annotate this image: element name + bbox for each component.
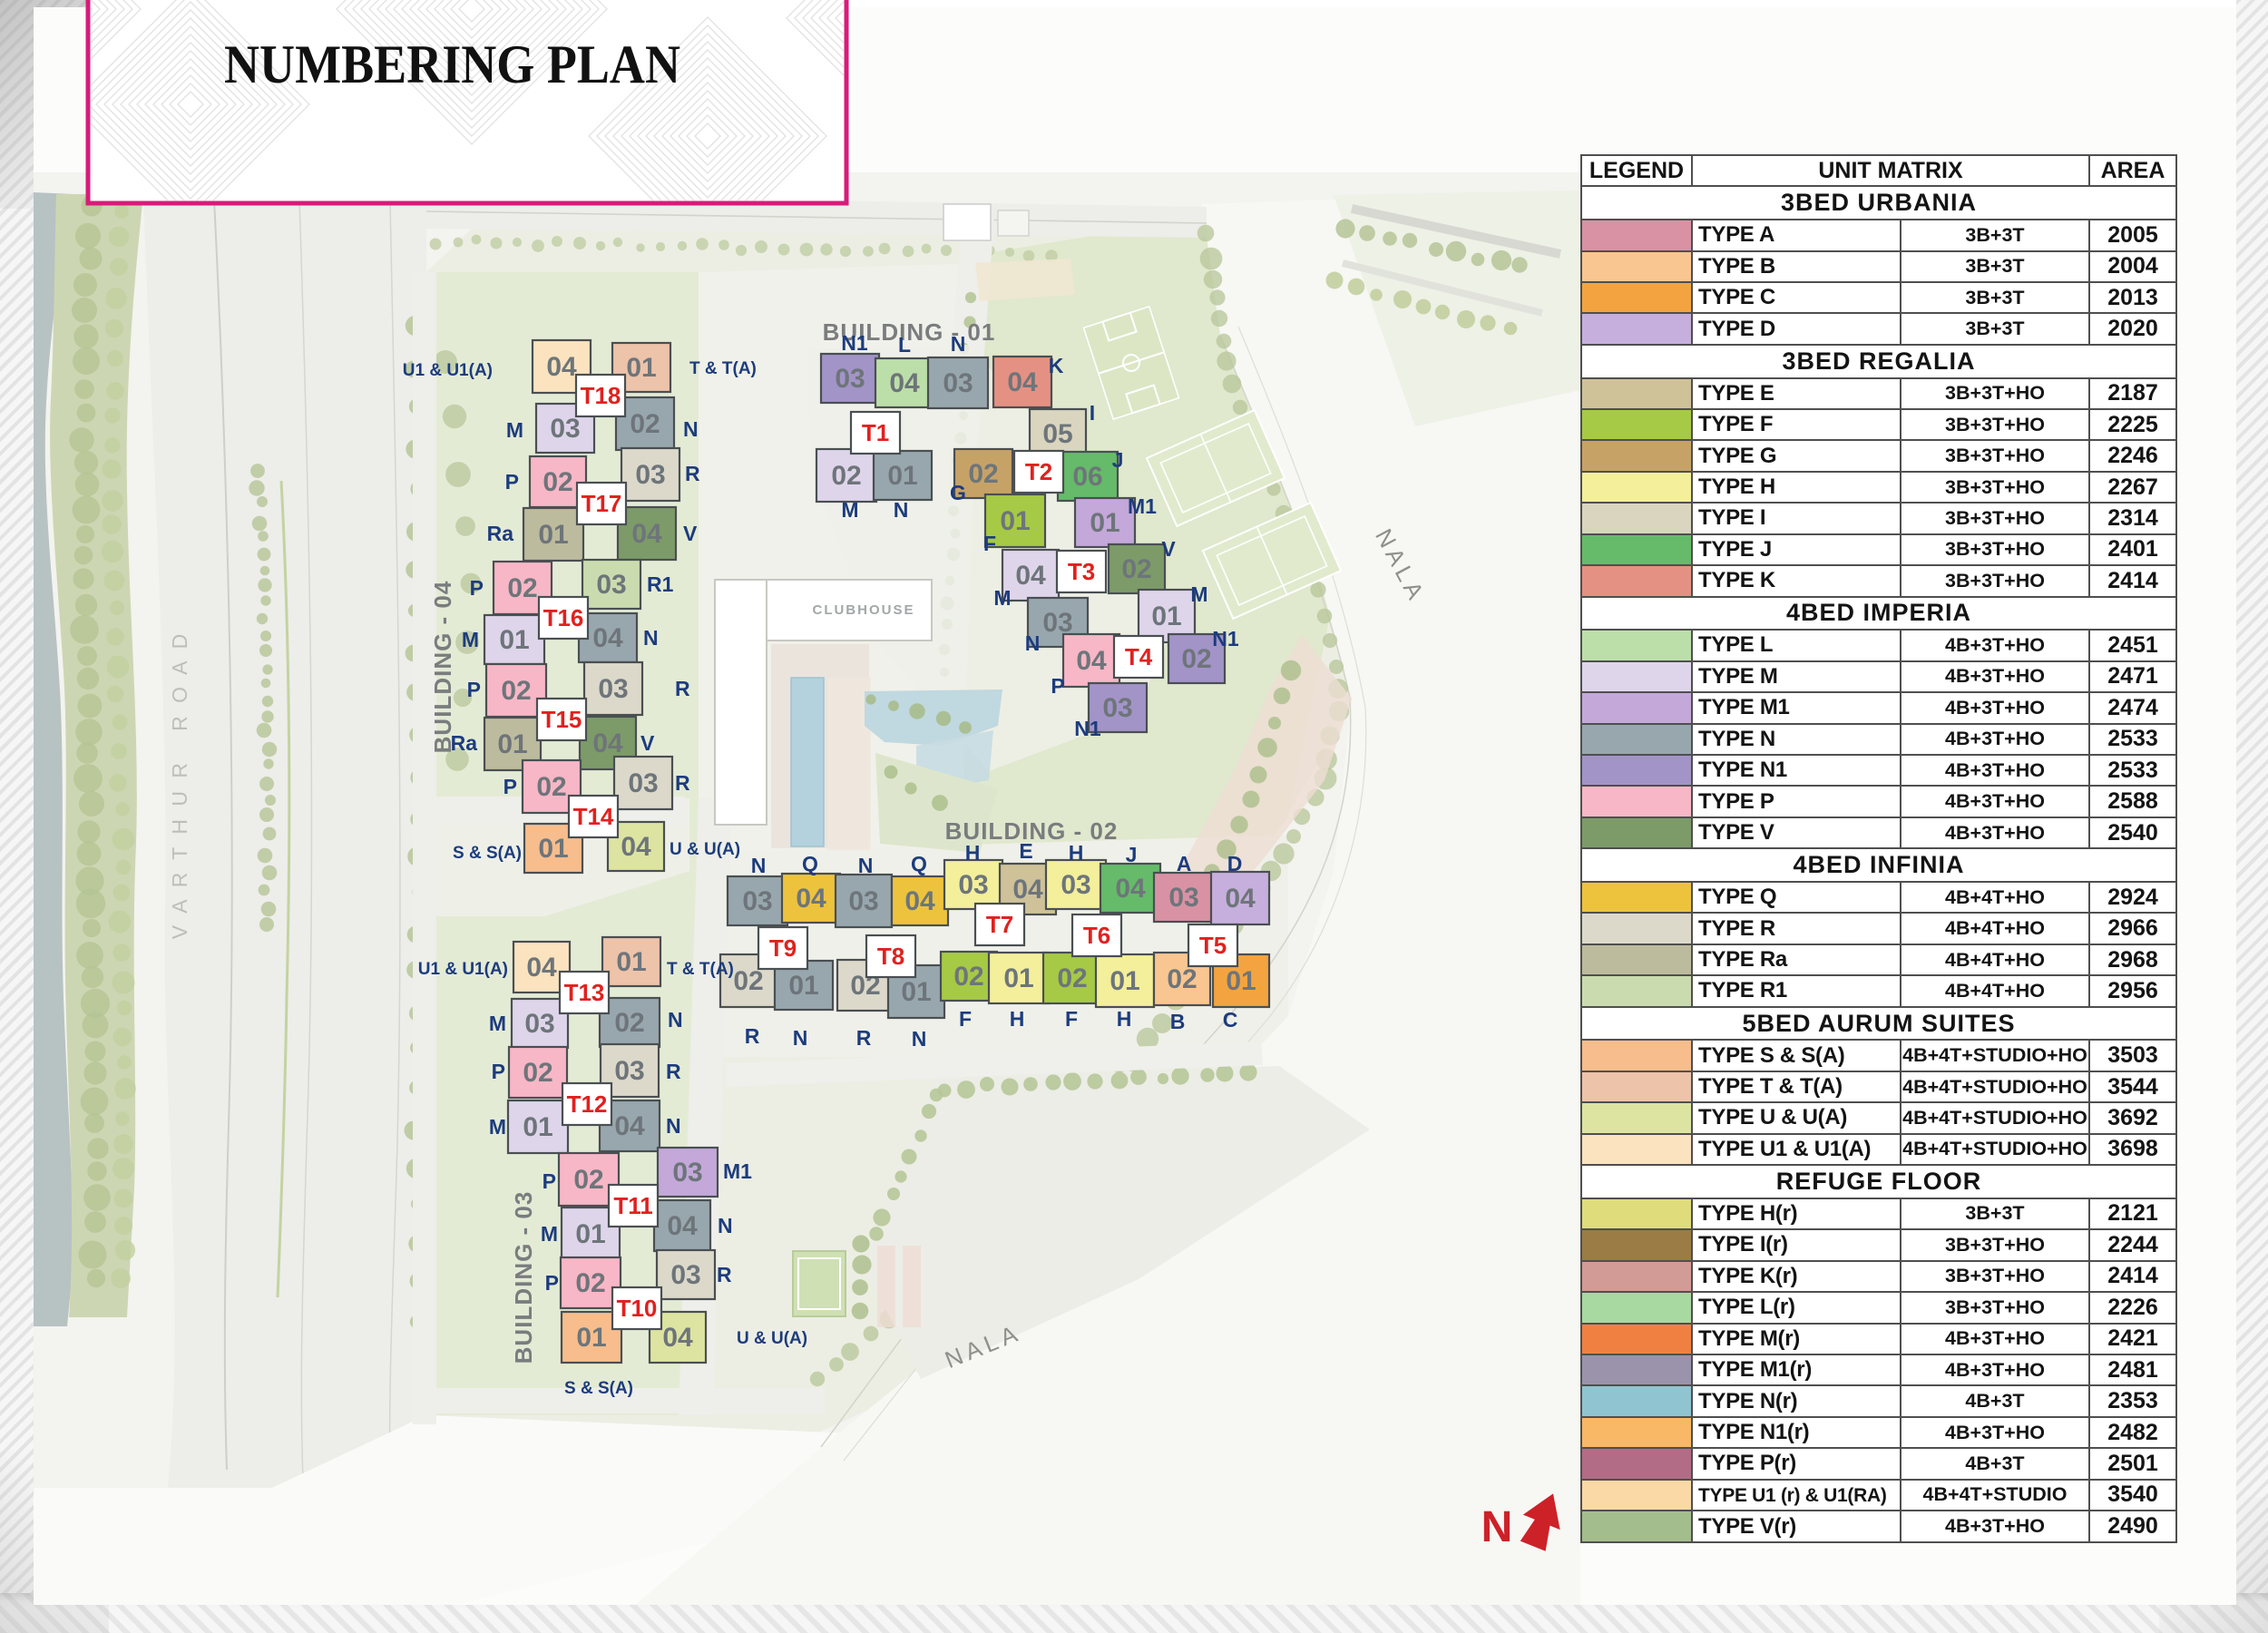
svg-text:02: 02 bbox=[614, 1008, 644, 1038]
svg-text:01: 01 bbox=[788, 971, 818, 1001]
svg-text:04: 04 bbox=[1076, 646, 1107, 676]
svg-text:03: 03 bbox=[635, 460, 665, 490]
svg-text:V: V bbox=[1161, 537, 1176, 561]
svg-text:N: N bbox=[751, 854, 767, 877]
svg-text:G: G bbox=[950, 481, 966, 504]
svg-text:04: 04 bbox=[621, 832, 651, 862]
svg-text:Ra: Ra bbox=[487, 522, 514, 545]
svg-text:04: 04 bbox=[526, 953, 557, 983]
svg-text:U & U(A): U & U(A) bbox=[737, 1329, 807, 1348]
svg-text:R: R bbox=[675, 677, 690, 700]
svg-text:04: 04 bbox=[1015, 561, 1046, 591]
svg-text:P: P bbox=[470, 576, 484, 600]
svg-text:T2: T2 bbox=[1025, 458, 1052, 485]
svg-text:N1: N1 bbox=[1212, 627, 1239, 650]
svg-text:Ra: Ra bbox=[451, 731, 478, 755]
svg-text:L: L bbox=[898, 333, 911, 357]
svg-text:03: 03 bbox=[742, 886, 772, 916]
svg-text:T3: T3 bbox=[1068, 558, 1095, 585]
svg-text:01: 01 bbox=[1110, 966, 1139, 996]
svg-text:R: R bbox=[675, 771, 690, 795]
svg-text:V: V bbox=[640, 731, 655, 755]
svg-text:03: 03 bbox=[596, 570, 626, 600]
svg-text:01: 01 bbox=[1151, 601, 1181, 631]
svg-text:02: 02 bbox=[1121, 554, 1151, 584]
svg-text:N: N bbox=[1025, 631, 1041, 655]
svg-text:04: 04 bbox=[592, 728, 623, 758]
svg-text:02: 02 bbox=[968, 459, 998, 489]
svg-text:N: N bbox=[666, 1114, 681, 1138]
svg-text:02: 02 bbox=[630, 409, 660, 439]
svg-text:E: E bbox=[1019, 839, 1032, 863]
svg-text:N: N bbox=[858, 854, 874, 877]
svg-text:BUILDING - 04: BUILDING - 04 bbox=[429, 581, 456, 754]
svg-text:02: 02 bbox=[523, 1058, 552, 1088]
svg-text:04: 04 bbox=[546, 352, 577, 382]
svg-text:03: 03 bbox=[628, 768, 658, 798]
svg-text:R: R bbox=[717, 1263, 732, 1286]
svg-text:C: C bbox=[1223, 1008, 1238, 1032]
svg-text:F: F bbox=[1065, 1007, 1078, 1031]
svg-text:S & S(A): S & S(A) bbox=[564, 1379, 633, 1398]
svg-text:04: 04 bbox=[1007, 367, 1038, 397]
svg-text:P: P bbox=[505, 470, 519, 494]
svg-text:I: I bbox=[1090, 401, 1095, 425]
svg-text:06: 06 bbox=[1072, 462, 1102, 492]
svg-text:N1: N1 bbox=[1074, 717, 1101, 740]
svg-text:04: 04 bbox=[662, 1323, 693, 1353]
svg-text:01: 01 bbox=[497, 729, 527, 759]
svg-text:01: 01 bbox=[887, 461, 917, 491]
svg-text:P: P bbox=[467, 678, 481, 701]
svg-text:B: B bbox=[1170, 1010, 1186, 1033]
svg-text:N: N bbox=[718, 1214, 733, 1237]
svg-text:R: R bbox=[745, 1024, 760, 1048]
svg-text:02: 02 bbox=[501, 676, 531, 706]
svg-text:N: N bbox=[951, 332, 966, 356]
svg-text:R1: R1 bbox=[647, 572, 674, 596]
svg-text:Q: Q bbox=[802, 852, 818, 875]
svg-text:P: P bbox=[503, 775, 517, 798]
svg-text:BUILDING - 03: BUILDING - 03 bbox=[510, 1191, 537, 1364]
svg-text:03: 03 bbox=[550, 414, 580, 444]
svg-text:T11: T11 bbox=[613, 1192, 652, 1219]
svg-text:04: 04 bbox=[631, 519, 662, 549]
svg-text:03: 03 bbox=[1102, 693, 1132, 723]
svg-text:P: P bbox=[1051, 674, 1064, 698]
svg-text:01: 01 bbox=[575, 1219, 605, 1249]
svg-text:02: 02 bbox=[573, 1165, 603, 1195]
svg-text:NUMBERING PLAN: NUMBERING PLAN bbox=[224, 34, 680, 94]
svg-text:U1 & U1(A): U1 & U1(A) bbox=[418, 960, 508, 979]
svg-text:03: 03 bbox=[1061, 870, 1090, 900]
svg-text:P: P bbox=[545, 1271, 559, 1295]
svg-text:T12: T12 bbox=[567, 1090, 608, 1118]
svg-text:D: D bbox=[1227, 852, 1243, 875]
svg-text:N1: N1 bbox=[841, 331, 868, 355]
svg-text:M1: M1 bbox=[1128, 494, 1157, 518]
svg-text:01: 01 bbox=[576, 1323, 606, 1353]
svg-text:03: 03 bbox=[1168, 883, 1198, 913]
svg-text:N: N bbox=[793, 1026, 808, 1050]
svg-text:U & U(A): U & U(A) bbox=[670, 840, 740, 859]
svg-text:02: 02 bbox=[953, 962, 983, 992]
svg-text:04: 04 bbox=[904, 886, 935, 916]
svg-text:M: M bbox=[993, 586, 1011, 610]
svg-text:M: M bbox=[541, 1222, 558, 1246]
svg-text:04: 04 bbox=[796, 884, 826, 914]
svg-text:T18: T18 bbox=[581, 382, 621, 409]
svg-text:01: 01 bbox=[626, 353, 656, 383]
svg-text:M1: M1 bbox=[723, 1159, 752, 1183]
svg-text:01: 01 bbox=[616, 947, 646, 977]
svg-text:J: J bbox=[1126, 843, 1138, 866]
svg-text:03: 03 bbox=[524, 1009, 554, 1039]
svg-text:T & T(A): T & T(A) bbox=[689, 359, 757, 378]
svg-text:01: 01 bbox=[523, 1112, 552, 1142]
svg-text:N: N bbox=[912, 1027, 927, 1051]
svg-text:H: H bbox=[1010, 1007, 1025, 1031]
svg-text:03: 03 bbox=[835, 364, 865, 394]
svg-text:01: 01 bbox=[901, 977, 931, 1007]
svg-text:04: 04 bbox=[1115, 874, 1146, 904]
svg-text:02: 02 bbox=[507, 573, 537, 603]
svg-text:N: N bbox=[643, 626, 659, 650]
svg-text:H: H bbox=[1117, 1007, 1132, 1031]
svg-text:N: N bbox=[668, 1008, 683, 1032]
svg-text:04: 04 bbox=[614, 1111, 645, 1141]
svg-text:02: 02 bbox=[543, 467, 572, 497]
svg-text:03: 03 bbox=[672, 1158, 702, 1188]
svg-text:F: F bbox=[983, 532, 996, 555]
svg-text:T5: T5 bbox=[1199, 932, 1227, 959]
svg-text:V A R T H U R R O A D: V A R T H U R R O A D bbox=[168, 631, 191, 939]
svg-text:U1 & U1(A): U1 & U1(A) bbox=[403, 361, 493, 380]
svg-text:01: 01 bbox=[538, 834, 568, 864]
svg-text:02: 02 bbox=[831, 461, 861, 491]
svg-text:H: H bbox=[965, 841, 981, 865]
svg-text:02: 02 bbox=[536, 772, 566, 802]
svg-text:02: 02 bbox=[733, 966, 763, 996]
svg-text:04: 04 bbox=[592, 623, 623, 653]
svg-text:03: 03 bbox=[848, 886, 878, 916]
svg-text:CLUBHOUSE: CLUBHOUSE bbox=[812, 602, 914, 618]
svg-text:A: A bbox=[1177, 852, 1192, 875]
svg-text:P: P bbox=[492, 1060, 505, 1083]
svg-text:M: M bbox=[1190, 582, 1207, 606]
svg-text:T9: T9 bbox=[769, 934, 797, 962]
svg-text:F: F bbox=[959, 1007, 972, 1031]
svg-text:04: 04 bbox=[889, 368, 920, 398]
svg-text:N: N bbox=[894, 498, 909, 522]
svg-text:03: 03 bbox=[598, 674, 628, 704]
svg-text:R: R bbox=[666, 1060, 681, 1083]
svg-text:01: 01 bbox=[1000, 506, 1030, 536]
svg-text:V: V bbox=[683, 522, 698, 545]
svg-text:T & T(A): T & T(A) bbox=[667, 960, 734, 979]
svg-text:N: N bbox=[1481, 1503, 1513, 1551]
svg-text:01: 01 bbox=[499, 625, 529, 655]
svg-text:05: 05 bbox=[1042, 419, 1072, 449]
svg-text:T6: T6 bbox=[1083, 922, 1110, 949]
svg-text:03: 03 bbox=[958, 870, 988, 900]
svg-text:02: 02 bbox=[575, 1268, 605, 1298]
svg-text:P: P bbox=[543, 1169, 556, 1193]
svg-text:01: 01 bbox=[538, 520, 568, 550]
svg-text:T10: T10 bbox=[617, 1295, 658, 1322]
svg-text:M: M bbox=[489, 1115, 506, 1139]
svg-text:01: 01 bbox=[1226, 966, 1256, 996]
svg-text:03: 03 bbox=[670, 1260, 700, 1290]
svg-text:03: 03 bbox=[614, 1056, 644, 1086]
svg-text:04: 04 bbox=[1225, 884, 1256, 914]
svg-text:M: M bbox=[506, 418, 523, 442]
svg-text:T1: T1 bbox=[862, 419, 889, 446]
svg-text:03: 03 bbox=[943, 368, 973, 398]
svg-text:T8: T8 bbox=[877, 943, 904, 970]
svg-text:04: 04 bbox=[1012, 875, 1043, 905]
svg-text:K: K bbox=[1049, 354, 1064, 377]
svg-text:02: 02 bbox=[1167, 964, 1197, 994]
svg-text:R: R bbox=[685, 462, 700, 485]
svg-text:T13: T13 bbox=[564, 979, 605, 1006]
svg-text:04: 04 bbox=[667, 1211, 698, 1241]
svg-text:T14: T14 bbox=[573, 803, 614, 830]
svg-text:T7: T7 bbox=[986, 911, 1013, 938]
svg-text:02: 02 bbox=[1057, 963, 1087, 993]
svg-text:02: 02 bbox=[1181, 644, 1211, 674]
svg-text:M: M bbox=[841, 498, 858, 522]
svg-text:T15: T15 bbox=[542, 706, 582, 733]
svg-text:01: 01 bbox=[1003, 963, 1033, 993]
svg-text:H: H bbox=[1069, 841, 1084, 865]
svg-text:T4: T4 bbox=[1125, 643, 1153, 670]
svg-text:01: 01 bbox=[1090, 508, 1119, 538]
svg-text:Q: Q bbox=[911, 852, 927, 875]
svg-text:J: J bbox=[1112, 448, 1124, 472]
svg-text:M: M bbox=[489, 1012, 506, 1035]
svg-text:T16: T16 bbox=[543, 604, 584, 631]
svg-text:R: R bbox=[856, 1026, 872, 1050]
svg-text:S & S(A): S & S(A) bbox=[453, 844, 522, 863]
svg-text:T17: T17 bbox=[582, 490, 622, 517]
svg-text:M: M bbox=[462, 628, 479, 651]
svg-text:N: N bbox=[683, 417, 699, 441]
